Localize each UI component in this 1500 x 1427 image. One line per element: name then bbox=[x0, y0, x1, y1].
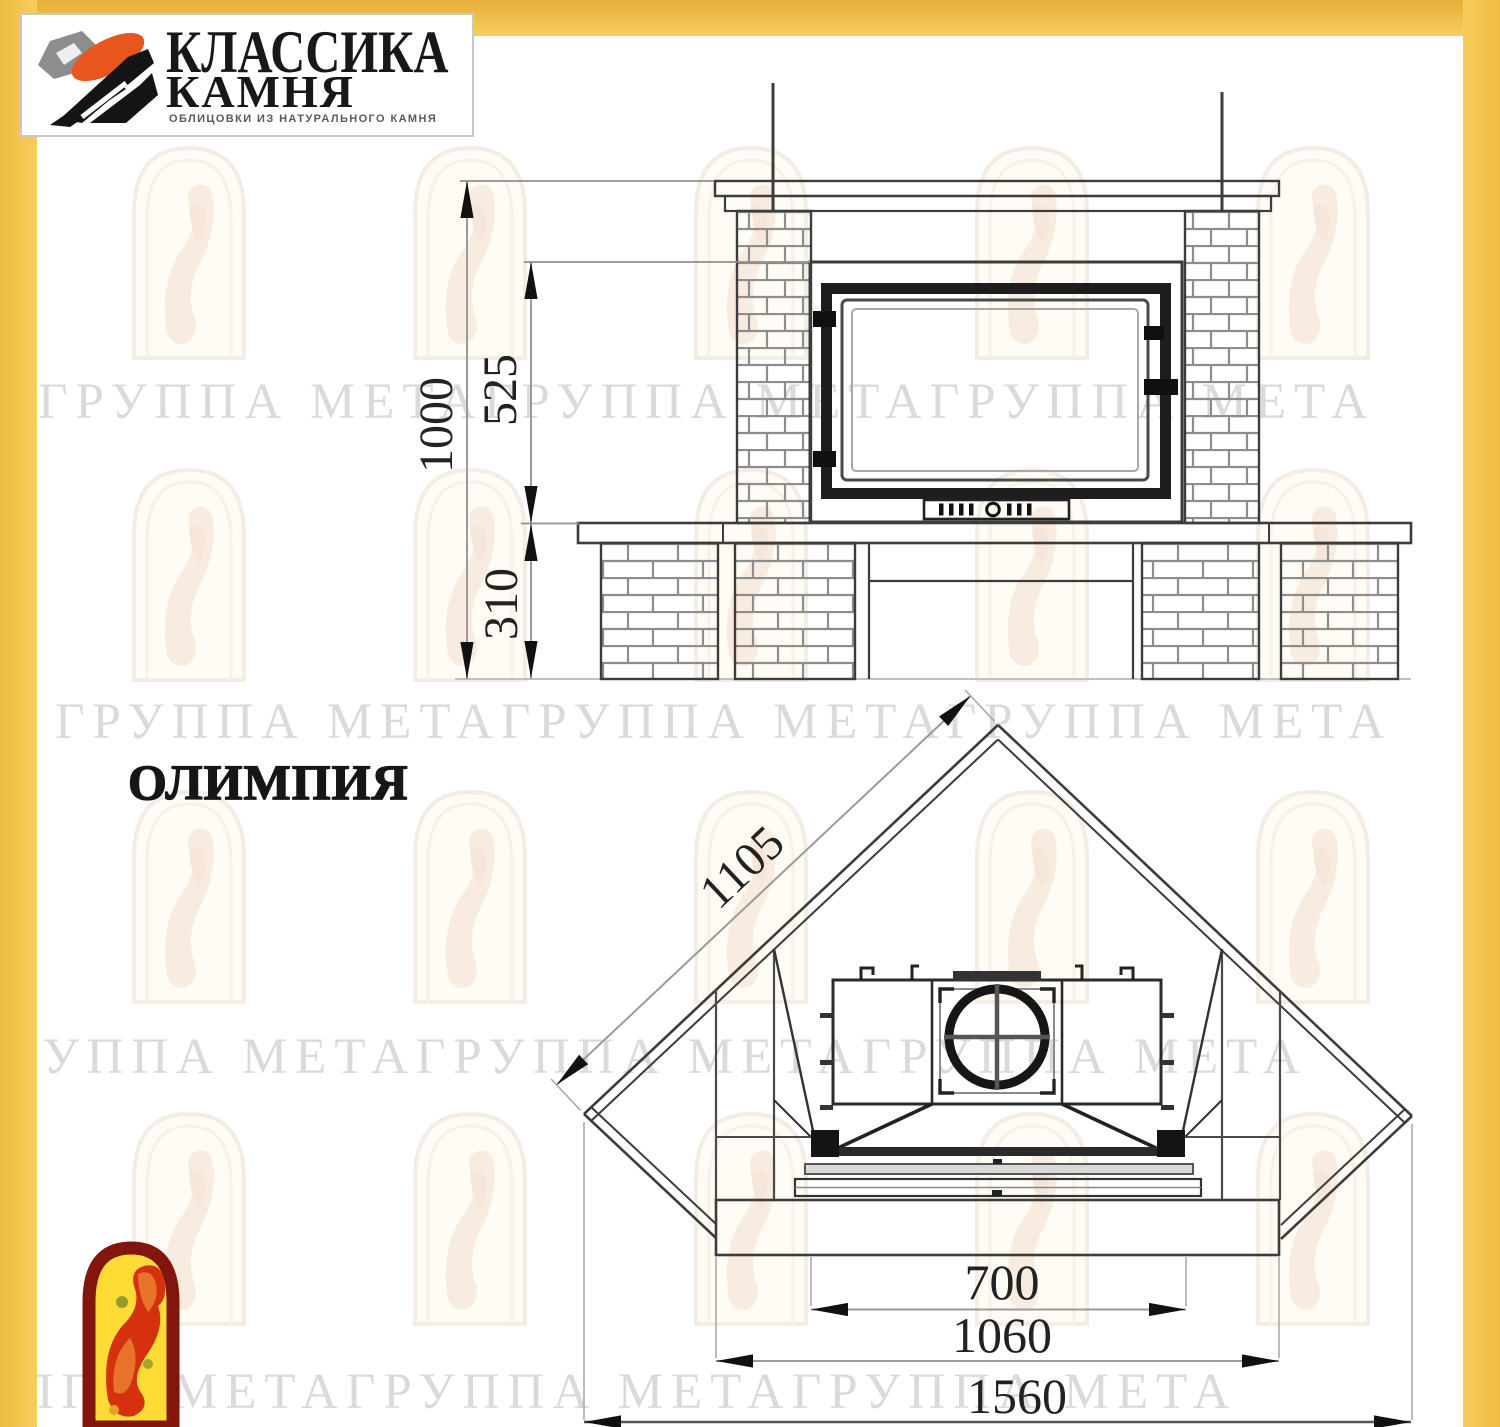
svg-text:1560: 1560 bbox=[967, 1368, 1067, 1424]
svg-text:ГРУППА МЕТАГРУППА МЕТАГРУППА М: ГРУППА МЕТАГРУППА МЕТАГРУППА МЕТА bbox=[0, 1029, 1308, 1085]
svg-text:700: 700 bbox=[965, 1254, 1040, 1310]
svg-text:310: 310 bbox=[475, 568, 528, 640]
svg-text:ГРУППА МЕТАГРУППА МЕТАГРУППА М: ГРУППА МЕТАГРУППА МЕТАГРУППА МЕТА bbox=[55, 694, 1393, 750]
svg-text:1000: 1000 bbox=[410, 377, 463, 473]
svg-text:1060: 1060 bbox=[952, 1307, 1052, 1363]
svg-text:525: 525 bbox=[474, 354, 527, 426]
